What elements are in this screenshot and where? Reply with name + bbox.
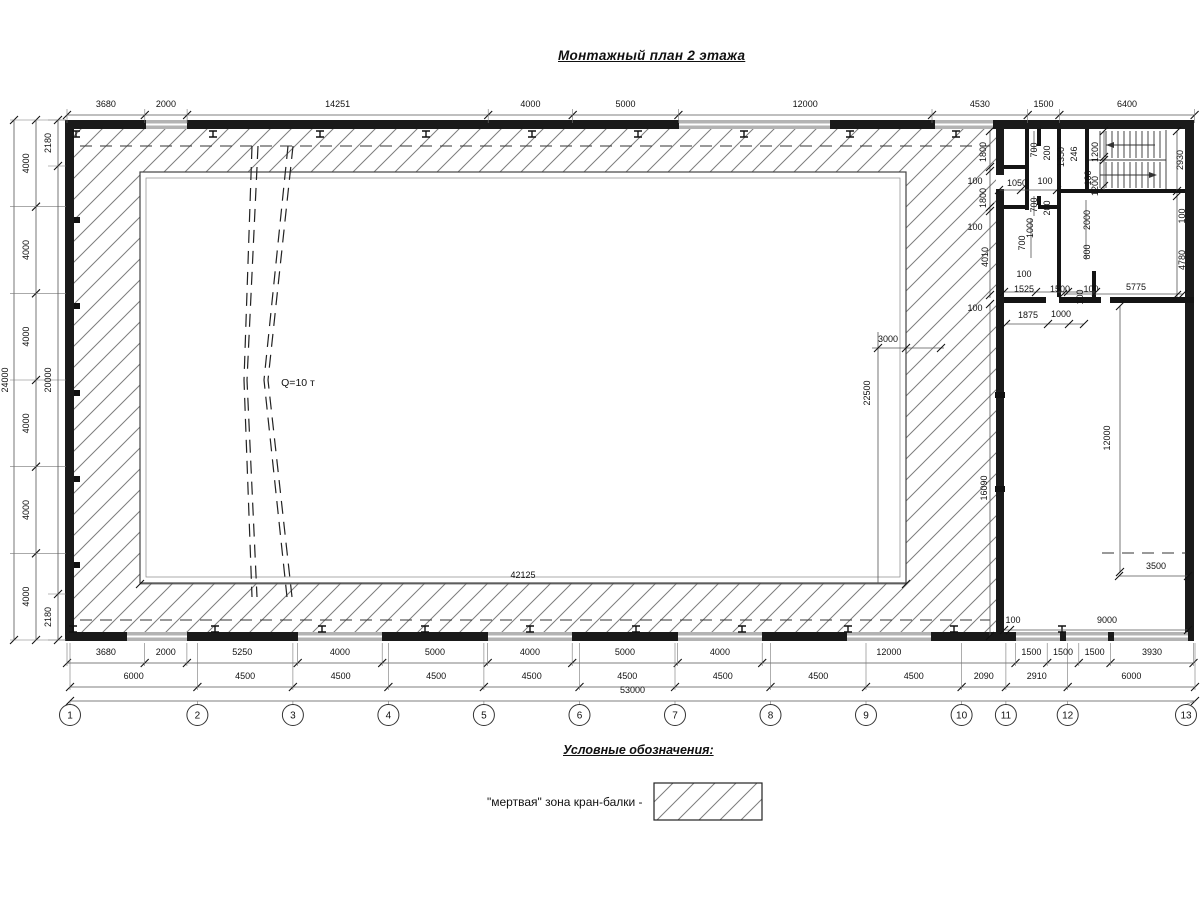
dim-label: 14251 <box>325 99 350 109</box>
inner-hall-rect <box>140 172 906 583</box>
crane-dead-zone-hatch <box>74 129 996 632</box>
dim-label: 4000 <box>21 327 31 347</box>
dim-label: 5000 <box>615 647 635 657</box>
dim-label: 8 <box>768 711 774 722</box>
dim-label: 4000 <box>21 500 31 520</box>
building-walls <box>65 120 1194 641</box>
dim-label: 1200 <box>1090 176 1100 196</box>
dim-label: 22500 <box>862 380 872 405</box>
dim-label: 4500 <box>426 671 446 681</box>
dim-label: 12000 <box>876 647 901 657</box>
dim-label: 100 <box>1037 176 1052 186</box>
dim-label: 100 <box>1016 269 1031 279</box>
dim-label: 700 <box>1029 142 1039 157</box>
dim-label: 4500 <box>904 671 924 681</box>
dim-label: 53000 <box>620 685 645 695</box>
dim-label: 4500 <box>808 671 828 681</box>
dim-label: 2930 <box>1175 150 1185 170</box>
dim-label: 3500 <box>1146 561 1166 571</box>
legend-item-dead-zone: "мертвая" зона кран-балки - <box>487 782 763 821</box>
dim-label: 200 <box>1042 145 1052 160</box>
crane-guide-dashed-lines <box>80 146 990 620</box>
dim-label: 11 <box>1001 711 1012 722</box>
dim-label: 9 <box>863 711 869 722</box>
dim-label: 12000 <box>793 99 818 109</box>
dim-label: 3930 <box>1142 647 1162 657</box>
legend-hatch-swatch <box>653 782 763 821</box>
drawing-title: Монтажный план 2 этажа <box>558 48 745 63</box>
legend-item-label: "мертвая" зона кран-балки - <box>487 795 643 809</box>
dim-label: 246 <box>1069 146 1079 161</box>
dim-label: 6000 <box>1121 671 1141 681</box>
dim-label: 4000 <box>21 413 31 433</box>
dim-label: 12 <box>1062 711 1074 722</box>
dim-label: 100 <box>1177 208 1187 223</box>
dim-label: 7 <box>672 711 678 722</box>
dim-label: 2180 <box>43 607 53 627</box>
crane-beam-lines <box>244 146 293 597</box>
dim-label: 12000 <box>1102 425 1112 450</box>
dim-label: 700 <box>1029 197 1039 212</box>
stair-arrow-down <box>1149 172 1157 178</box>
dim-label: 6 <box>577 711 583 722</box>
dim-label: 4780 <box>1177 250 1187 270</box>
dim-label: 4000 <box>21 153 31 173</box>
dim-label: 1500 <box>1021 647 1041 657</box>
dim-label: 1800 <box>978 188 988 208</box>
dim-label: 10 <box>956 711 968 722</box>
stair-arrow-up <box>1106 142 1114 148</box>
axis-bubbles: 12345678910111213 <box>60 701 1197 726</box>
dim-row-bottom-spans: 3680200052504000500040005000400012000150… <box>63 643 1198 667</box>
dim-label: 4500 <box>331 671 351 681</box>
dim-label: 1525 <box>1014 284 1034 294</box>
dim-label: 100 <box>967 222 982 232</box>
dim-label: 2000 <box>156 647 176 657</box>
dim-label: 1500 <box>1085 647 1105 657</box>
dim-label: 5000 <box>616 99 636 109</box>
dim-label: 1 <box>67 711 73 722</box>
dim-label: 100 <box>967 176 982 186</box>
dim-label: 4500 <box>617 671 637 681</box>
dim-label: 4500 <box>235 671 255 681</box>
dim-label: 4000 <box>520 647 540 657</box>
legend-heading: Условные обозначения: <box>563 743 714 757</box>
dim-label: 2180 <box>43 133 53 153</box>
interior-dim-labels: Q=10 т4212530002250018001001800100401010… <box>136 127 1192 640</box>
dim-label: 2910 <box>1027 671 1047 681</box>
staircase <box>1089 130 1166 189</box>
dim-label: 200 <box>1042 200 1052 215</box>
dim-label: 3000 <box>878 334 898 344</box>
dim-label: 5 <box>481 711 487 722</box>
dim-label: 24000 <box>0 367 10 392</box>
dim-label: 9000 <box>1097 615 1117 625</box>
dim-label: 700 <box>1017 235 1027 250</box>
dim-label: 5000 <box>425 647 445 657</box>
dim-label: Q=10 т <box>281 377 315 389</box>
dim-label: 4000 <box>21 587 31 607</box>
dim-label: 6000 <box>124 671 144 681</box>
dim-label: 4000 <box>520 99 540 109</box>
dim-label: 4000 <box>21 240 31 260</box>
dim-label: 2090 <box>974 671 994 681</box>
dim-label: 16090 <box>979 475 989 500</box>
dim-label: 3680 <box>96 99 116 109</box>
dim-label: 800 <box>1082 244 1092 259</box>
dim-label: 1500 <box>1053 647 1073 657</box>
dim-label: 1800 <box>978 142 988 162</box>
dim-label: 20000 <box>43 367 53 392</box>
dim-label: 100 <box>1075 289 1085 304</box>
dim-label: 100 <box>1005 615 1020 625</box>
dim-label: 4000 <box>710 647 730 657</box>
dim-label: 5250 <box>232 647 252 657</box>
drawing-sheet: Монтажный план 2 этажа <box>0 0 1200 900</box>
dim-label: 4 <box>386 711 392 722</box>
floor-plan-drawing: 3680200014251400050001200045301500640036… <box>0 0 1200 900</box>
dim-label: 1200 <box>1090 142 1100 162</box>
dim-label: 3680 <box>96 647 116 657</box>
dim-label: 2000 <box>1082 210 1092 230</box>
dim-label: 13 <box>1180 711 1192 722</box>
dim-label: 4010 <box>980 247 990 267</box>
dim-label: 4500 <box>522 671 542 681</box>
dim-label: 4530 <box>970 99 990 109</box>
dim-label: 6400 <box>1117 99 1137 109</box>
dim-label: 4500 <box>713 671 733 681</box>
dim-label: 2 <box>195 711 201 722</box>
dim-label: 3 <box>290 711 296 722</box>
dim-row-top: 36802000142514000500012000453015006400 <box>63 99 1199 123</box>
dim-label: 2000 <box>156 99 176 109</box>
dim-label: 42125 <box>510 570 535 580</box>
dim-label: 1875 <box>1018 310 1038 320</box>
dim-label: 1000 <box>1051 309 1071 319</box>
dim-label: 1500 <box>1034 99 1054 109</box>
dim-row-bottom-total: 53000 <box>66 685 1199 705</box>
dim-label: 1350 <box>1056 147 1066 167</box>
dim-label: 4000 <box>330 647 350 657</box>
dim-label: 1000 <box>1025 218 1035 238</box>
dim-label: 5775 <box>1126 282 1146 292</box>
dim-label: 100 <box>967 303 982 313</box>
